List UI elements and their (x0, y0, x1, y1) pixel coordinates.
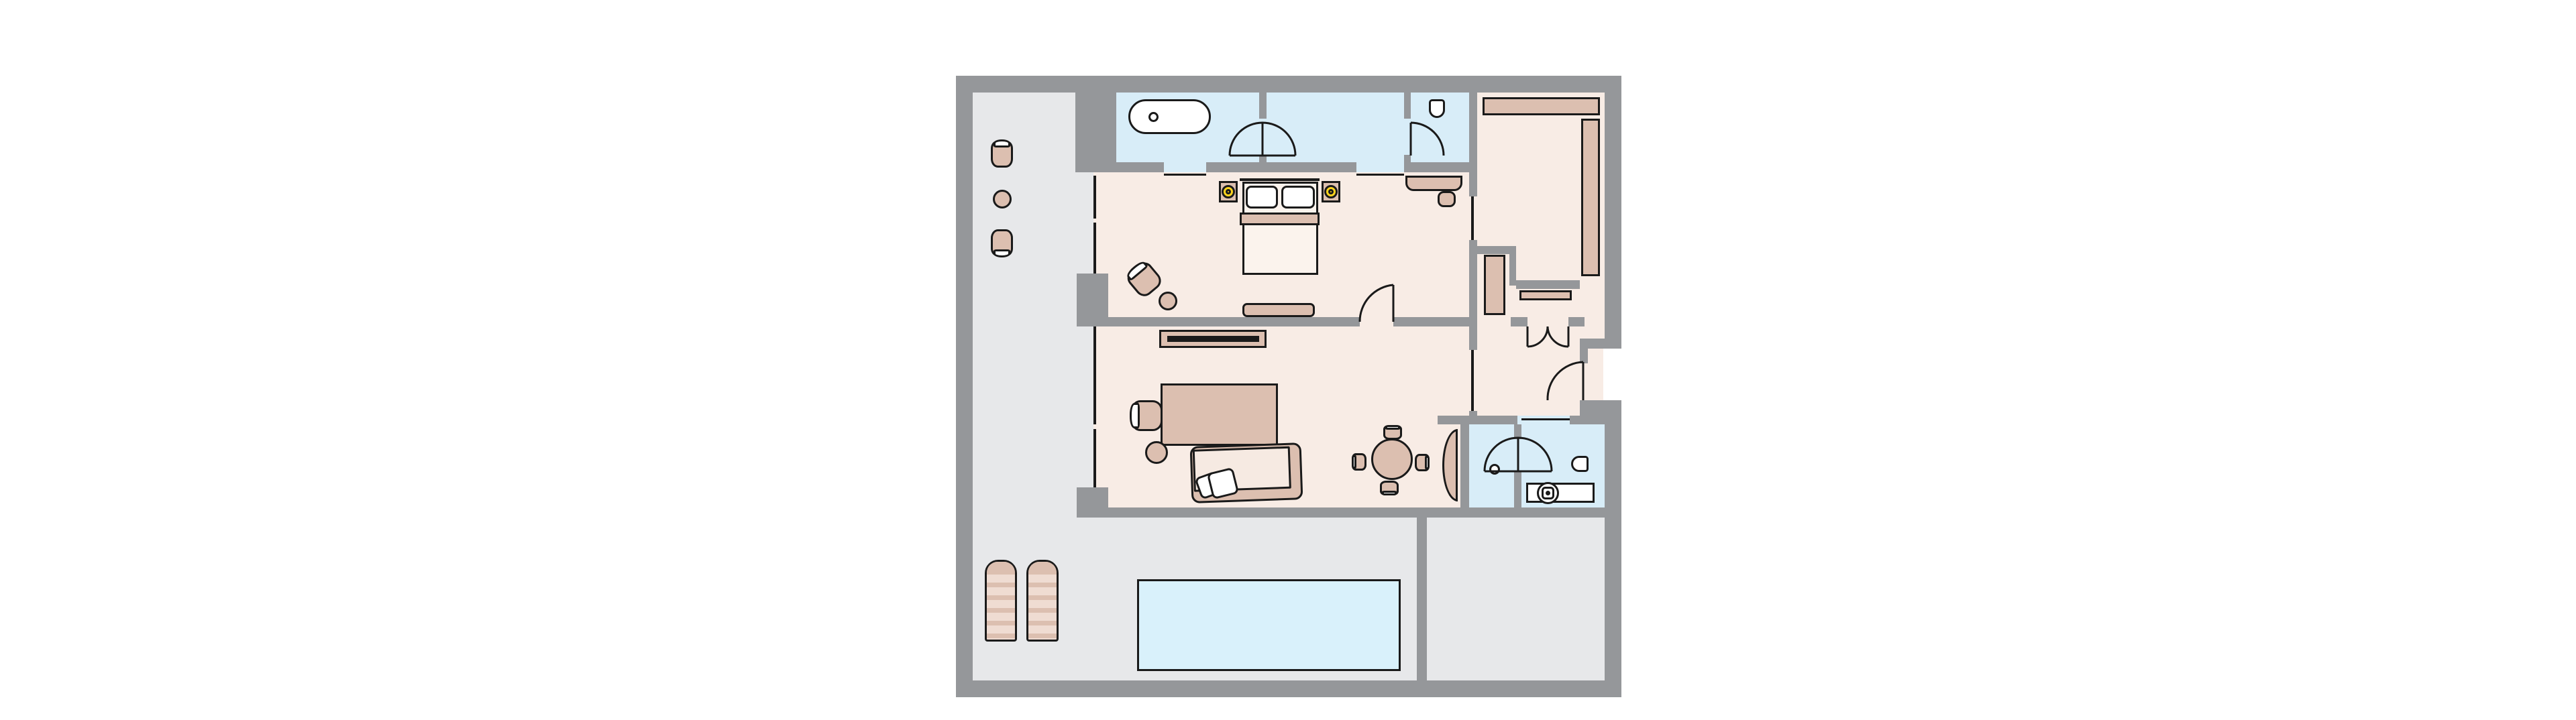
wall-entry-side (1580, 339, 1588, 363)
hall-cabinet (1484, 255, 1505, 315)
wall-bathroom-bottom-b (1206, 162, 1356, 172)
wall-window-pillar-mid (1077, 274, 1108, 326)
lamp-right (1324, 185, 1338, 198)
wall-divider-right (1393, 317, 1477, 326)
bed-blanket (1240, 213, 1320, 225)
toilet (1429, 99, 1445, 118)
wall-closet-stub-left (1511, 317, 1527, 326)
bathtub (1128, 99, 1211, 134)
entry-recess (1603, 349, 1621, 400)
bathtub-drain (1148, 112, 1159, 122)
sliding-door-wc (1356, 174, 1404, 176)
desk-stool (1145, 441, 1168, 464)
corridor-chair-top (991, 141, 1013, 168)
desk (1161, 383, 1278, 446)
hall-shelf (1519, 290, 1572, 300)
sliding-door-shower-room (1521, 418, 1570, 420)
wall-shower-room-top (1438, 416, 1517, 424)
sliding-door-bathroom (1164, 174, 1206, 176)
corridor-table (993, 190, 1012, 208)
wall-terrace-divider (1417, 518, 1427, 680)
wall-dressing-left-top (1469, 92, 1477, 196)
wall-outer-bottom (956, 680, 1621, 697)
bed-headboard (1240, 178, 1320, 181)
window-living-lower (1093, 429, 1096, 487)
window-bedroom-lower (1093, 223, 1096, 274)
page: { "title": "apartment-floor-plan", "pale… (0, 0, 2576, 720)
shower-drain (1489, 464, 1500, 475)
window-living-upper (1093, 326, 1096, 424)
wall-outer-left (956, 76, 973, 697)
wall-indoor-bottom (1077, 507, 1605, 518)
toilet-2 (1571, 456, 1589, 472)
wall-room-divider (1108, 317, 1360, 326)
wall-closet-stub-right (1568, 317, 1585, 326)
dining-table (1371, 438, 1413, 480)
wall-bathroom-bottom-c (1404, 162, 1476, 172)
sliding-door-bedroom-dressing (1471, 196, 1474, 240)
wall-outer-top (956, 76, 1621, 93)
bed-pillow-left (1246, 186, 1278, 208)
corridor-chair-bottom (991, 229, 1013, 256)
wall-niche-right (1509, 246, 1516, 286)
lamp-left (1222, 185, 1235, 198)
wardrobe-right (1581, 119, 1600, 276)
wall-bathroom-left-block (1075, 92, 1116, 172)
floor-terrace-right (1427, 507, 1605, 680)
wall-entry-bottom (1580, 400, 1621, 424)
wall-bath-divider-stub-top (1259, 92, 1267, 119)
dining-chair-right (1415, 454, 1430, 471)
pool (1137, 579, 1401, 671)
wall-wc-stub-top (1404, 92, 1411, 119)
wall-shower-room-left (1460, 416, 1469, 518)
bench (1242, 303, 1315, 317)
wall-hall-stub (1469, 326, 1477, 350)
wardrobe-top (1483, 97, 1600, 115)
wall-shower-divider-top (1514, 424, 1521, 439)
sun-lounger-left (985, 560, 1017, 642)
dressing-stool (1438, 191, 1456, 207)
wall-shower-room-top-stub (1570, 416, 1580, 424)
dining-chair-left (1352, 453, 1366, 471)
sun-lounger-right (1026, 560, 1059, 642)
window-bedroom-upper (1093, 176, 1096, 219)
desk-chair (1132, 400, 1163, 431)
wall-shelf-back (1516, 280, 1580, 289)
sliding-door-living-hallway (1471, 350, 1474, 411)
side-table-bedroom (1159, 292, 1177, 310)
washbasin (1537, 482, 1559, 504)
floor-plan (956, 76, 1621, 697)
dressing-table (1405, 176, 1462, 191)
wall-dressing-left-bottom (1469, 240, 1477, 326)
tv (1167, 336, 1259, 342)
bed-pillow-right (1281, 186, 1315, 208)
dining-chair-bottom (1380, 481, 1399, 495)
dining-chair-top (1383, 425, 1402, 440)
wall-bathroom-bottom-a (1114, 162, 1164, 172)
